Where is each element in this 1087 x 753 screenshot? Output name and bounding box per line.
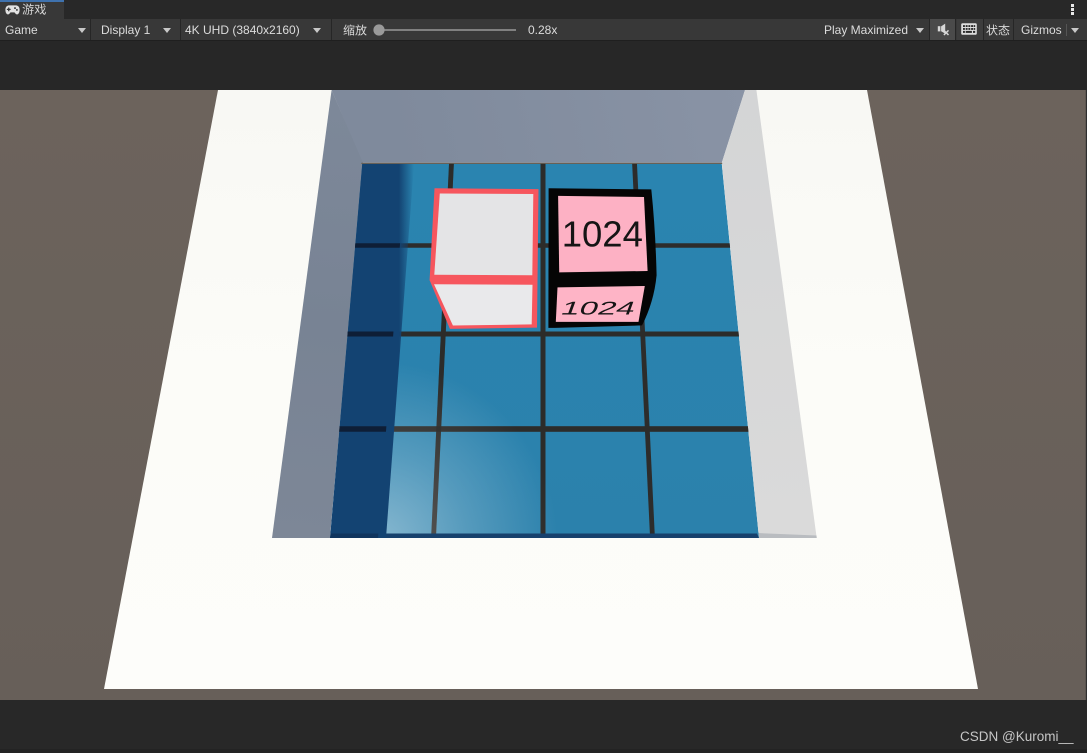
svg-text:1024: 1024 [562,213,643,254]
svg-text:1024: 1024 [558,297,639,318]
